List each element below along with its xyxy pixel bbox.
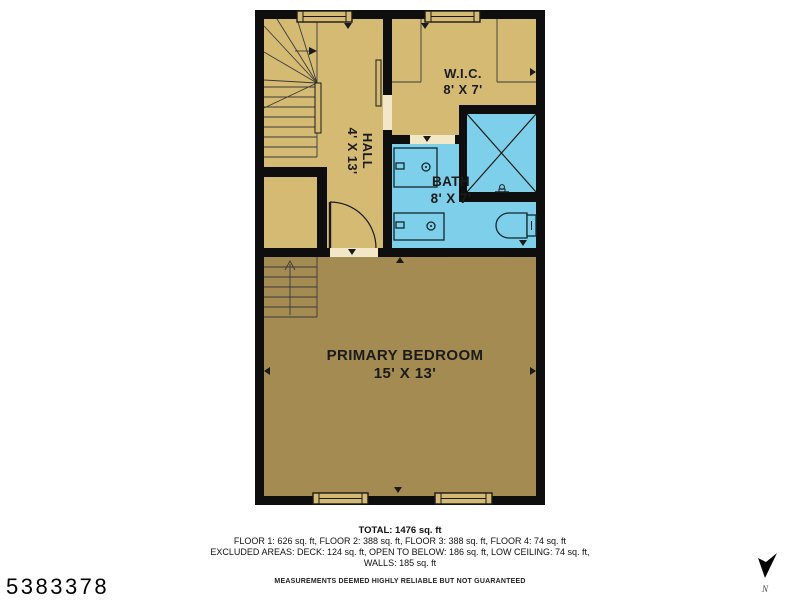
walls-area: WALLS: 185 sq. ft bbox=[0, 558, 800, 569]
north-label: N bbox=[761, 584, 769, 594]
stair-handrail bbox=[315, 83, 321, 133]
north-arrow-icon: N bbox=[745, 540, 785, 598]
bedroom-label: PRIMARY BEDROOM bbox=[327, 347, 484, 364]
window-bottom-right bbox=[435, 493, 492, 504]
wic-dims: 8' X 7' bbox=[443, 82, 482, 97]
total-area: TOTAL: 1476 sq. ft bbox=[0, 525, 800, 536]
bedroom-dims: 15' X 13' bbox=[374, 365, 436, 382]
floors-areas: FLOOR 1: 626 sq. ft, FLOOR 2: 388 sq. ft… bbox=[0, 536, 800, 547]
vanity-sink-1 bbox=[394, 148, 437, 187]
area-summary: TOTAL: 1476 sq. ft FLOOR 1: 626 sq. ft, … bbox=[0, 525, 800, 569]
wic-door-leaf bbox=[376, 60, 381, 106]
toilet bbox=[496, 213, 536, 238]
shower bbox=[459, 105, 536, 202]
hall-label-group: HALL 4' X 13' bbox=[345, 128, 375, 175]
vanity-sink-2 bbox=[394, 213, 444, 240]
excluded-areas: EXCLUDED AREAS: DECK: 124 sq. ft, OPEN T… bbox=[0, 547, 800, 558]
listing-id: 5383378 bbox=[6, 574, 109, 600]
bath-doorway bbox=[410, 135, 455, 144]
window-top-left bbox=[297, 11, 352, 22]
bath-dims: 8' X 7' bbox=[431, 191, 472, 206]
hall-label: HALL bbox=[360, 133, 375, 169]
wic-label: W.I.C. bbox=[444, 66, 482, 81]
disclaimer-text: MEASUREMENTS DEEMED HIGHLY RELIABLE BUT … bbox=[0, 578, 800, 585]
floor-plan: W.I.C. 8' X 7' HALL 4' X 13' BATH 8' X 7… bbox=[255, 10, 545, 505]
bath-label: BATH bbox=[432, 174, 470, 189]
wic-doorway bbox=[383, 95, 392, 130]
window-bottom-left bbox=[313, 493, 368, 504]
hall-dims: 4' X 13' bbox=[345, 128, 360, 175]
window-top-right bbox=[425, 11, 480, 22]
floorplan-page: W.I.C. 8' X 7' HALL 4' X 13' BATH 8' X 7… bbox=[0, 0, 800, 600]
